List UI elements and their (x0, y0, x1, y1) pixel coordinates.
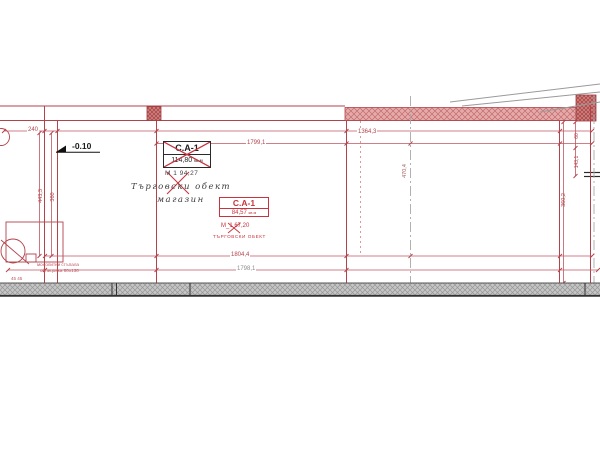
wall-verticals (45, 106, 591, 283)
unit-a-area: 114,80 (171, 157, 192, 164)
dim-left-vert-1: 443,3 (38, 178, 44, 214)
dim-top-inner: 1799,1 (246, 140, 266, 146)
dimension-ticks (2, 120, 600, 285)
unit-a-label: C.A-1 114,80 кв.м (163, 141, 211, 168)
sidewalk-band (0, 283, 600, 296)
stairs-note-line1: монолитни стъпала (37, 262, 79, 267)
break-symbol (584, 173, 600, 177)
dim-top-right: 1364,3 (357, 129, 377, 135)
stairs-note-line2: облицовка 80х130 (40, 268, 79, 273)
stair-small-dim: 45 45 (11, 276, 22, 281)
dim-bottom-outer: 1798,1 (236, 266, 256, 272)
dim-bottom-inner: 1804,4 (230, 252, 250, 258)
unit-b-note: М_1 67,20 (221, 223, 249, 230)
unit-a-note: М 1 94,27 (165, 170, 198, 177)
unit-b-label: C.A-1 84,57 кв.м (219, 197, 269, 217)
dim-right-vert-2: 360,2 (561, 182, 567, 218)
dim-mid-vert: 470,4 (402, 153, 408, 189)
unit-a-area-unit: кв.м (194, 158, 203, 163)
unit-b-area-unit: кв.м (248, 210, 256, 215)
unit-b-code: C.A-1 (220, 198, 268, 209)
wall-column (147, 107, 161, 121)
unit-a-handwritten-line2: магазин (157, 196, 205, 205)
level-marker-value: -0.10 (72, 141, 91, 151)
dim-top-small: 240 (27, 127, 39, 133)
dim-left-vert-2: 360 (50, 179, 56, 215)
unit-a-handwritten-line1: Търговски обект (131, 183, 231, 192)
unit-b-area: 84,57 (232, 210, 247, 216)
dimension-lines (4, 122, 598, 283)
plan-linework (0, 0, 600, 450)
dim-right-vert-1: 143,1 (574, 144, 580, 180)
scanned-floor-plan: -0.10 C.A-1 114,80 кв.м М 1 94,27 Търгов… (0, 0, 600, 450)
unit-a-code: C.A-1 (164, 142, 210, 155)
unit-b-name: ТЪРГОВСКИ ОБЕКТ (213, 234, 266, 239)
